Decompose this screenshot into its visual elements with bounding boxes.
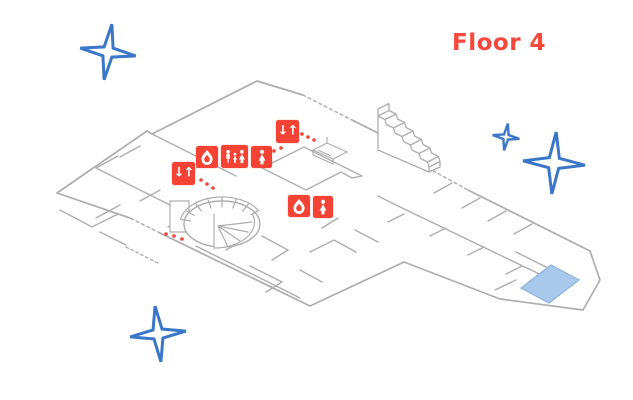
floor-label: Floor 4 <box>452 30 546 56</box>
woman-icon <box>253 148 271 166</box>
elevator-arrows-icon: ↓↑ <box>174 167 194 180</box>
staircase <box>378 104 440 173</box>
spiral-staircase <box>170 197 260 248</box>
womens-restroom-marker-1[interactable] <box>251 146 272 168</box>
sparkle-star-bottom-left <box>127 303 189 365</box>
womens-restroom-marker-2[interactable] <box>313 196 333 218</box>
fire-safety-marker-1[interactable] <box>196 146 218 168</box>
elevator-marker-1[interactable]: ↓↑ <box>172 162 195 185</box>
elevator-arrows-icon: ↓↑ <box>278 125 298 138</box>
interior-walls-right-wing <box>378 183 556 290</box>
woman-icon <box>314 198 332 216</box>
highlighted-room[interactable] <box>521 265 579 303</box>
sparkle-star-right-large <box>521 130 587 196</box>
fire-icon <box>198 148 216 166</box>
fire-safety-marker-2[interactable] <box>288 195 310 217</box>
floor4-map-canvas: Floor 4 <box>0 0 633 400</box>
sparkle-star-right-small <box>491 122 521 152</box>
fire-icon <box>290 197 308 215</box>
sparkle-star-top-left <box>76 20 139 83</box>
elevator-marker-2[interactable]: ↓↑ <box>276 120 299 143</box>
family-restroom-marker[interactable] <box>221 145 248 168</box>
family-restroom-icon <box>223 147 247 166</box>
interior-walls-upper-corridor <box>262 147 362 190</box>
interior-wall-dashed <box>126 247 158 263</box>
